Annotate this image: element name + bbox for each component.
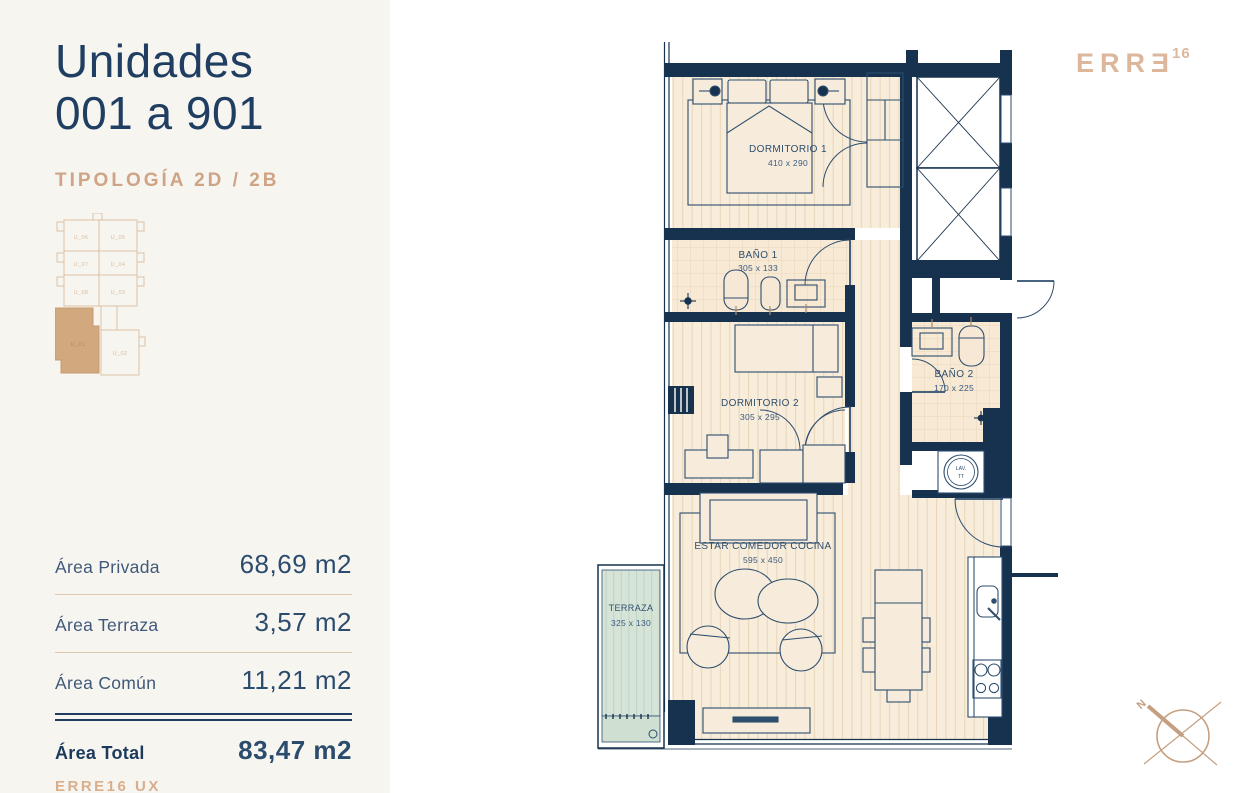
page-title-line1: Unidades <box>55 36 375 88</box>
keyplan-unit-label: U_06 <box>74 235 89 241</box>
wardrobe <box>760 450 803 483</box>
area-value: 68,69 m2 <box>240 549 352 580</box>
room-label: TERRAZA <box>609 603 654 613</box>
room-dims: 305 x 133 <box>738 263 778 273</box>
toilet <box>724 270 748 310</box>
washing-machine <box>938 451 984 493</box>
compass: N <box>1127 692 1227 772</box>
kitchen <box>968 557 1002 717</box>
area-row-comun: Área Común 11,21 m2 <box>55 653 352 710</box>
lamp-icon <box>710 86 720 96</box>
area-row-total: Área Total 83,47 m2 <box>55 723 352 780</box>
room-dims: 410 x 290 <box>768 158 808 168</box>
keyplan-unit-label: U_03 <box>111 290 126 296</box>
entry-door-frame <box>1001 498 1011 546</box>
bidet <box>761 277 780 310</box>
area-table: Área Privada 68,69 m2 Área Terraza 3,57 … <box>55 537 352 780</box>
radiator-unit <box>668 386 694 414</box>
room-label: ESTAR COMEDOR COCINA <box>694 541 831 552</box>
core-window <box>1001 95 1011 143</box>
typology-subtitle: TIPOLOGÍA 2D / 2B <box>55 170 280 192</box>
room-label: DORMITORIO 2 <box>721 398 799 409</box>
armchair <box>687 626 730 668</box>
room-dims: 595 x 450 <box>743 555 783 565</box>
page-title-line2: 001 a 901 <box>55 88 375 140</box>
armchair <box>780 629 822 671</box>
area-value: 11,21 m2 <box>242 665 352 696</box>
keyplan-highlighted-unit <box>55 308 99 373</box>
room-dims: 305 x 295 <box>740 412 780 422</box>
room-label: BAÑO 1 <box>738 248 777 261</box>
area-label: Área Terraza <box>55 615 158 636</box>
lamp-icon <box>818 86 828 96</box>
pillow <box>728 80 766 103</box>
area-row-privada: Área Privada 68,69 m2 <box>55 537 352 594</box>
compass-north-label: N <box>1135 698 1149 712</box>
keyplan-unit-label: U_02 <box>113 351 128 357</box>
keyplan-unit-label: U_04 <box>111 262 126 268</box>
tv <box>733 717 778 722</box>
faucet-icon <box>992 599 996 603</box>
nightstand <box>817 377 842 397</box>
elevator-core <box>917 77 1000 261</box>
dining-table <box>875 570 922 690</box>
coffee-table <box>758 579 818 623</box>
area-row-terraza: Área Terraza 3,57 m2 <box>55 595 352 652</box>
keyplan-unit-label: U_08 <box>74 290 89 296</box>
area-value: 3,57 m2 <box>255 607 352 638</box>
area-label: Área Común <box>55 673 156 694</box>
keyplan-unit-label: U_05 <box>111 235 126 241</box>
core-window <box>1001 188 1011 236</box>
page-title: Unidades 001 a 901 <box>55 36 375 139</box>
keyplan-unit-label: U_07 <box>74 262 89 268</box>
room-label: BAÑO 2 <box>934 367 973 380</box>
desk-chair <box>707 435 728 458</box>
keyplan-unit-label-highlighted: U_01 <box>71 342 86 348</box>
laundry-label: LAV. <box>956 466 966 472</box>
keyplan-diagram: U_06 U_05 U_07 U_04 U_08 U_03 U_01 U_02 <box>55 213 147 381</box>
area-total-label: Área Total <box>55 743 145 764</box>
toilet <box>959 326 984 366</box>
floor-hall <box>848 240 900 495</box>
total-divider <box>55 713 352 721</box>
laundry-label: TT <box>958 474 965 480</box>
floorplan-drawing: DORMITORIO 1 410 x 290 BAÑO 1 305 x 133 … <box>560 0 1245 793</box>
room-label: DORMITORIO 1 <box>749 144 827 155</box>
footer-brand-text: ERRE16 UX <box>55 779 161 793</box>
floorplan-sheet: Unidades 001 a 901 TIPOLOGÍA 2D / 2B U_0… <box>0 0 1245 793</box>
room-dims: 325 x 130 <box>611 618 651 628</box>
area-label: Área Privada <box>55 557 160 578</box>
wardrobe <box>803 445 845 483</box>
bed-single <box>735 325 838 372</box>
terrace <box>598 565 664 748</box>
room-dims: 170 x 225 <box>934 383 974 393</box>
area-total-value: 83,47 m2 <box>238 735 352 766</box>
floor-elevator-lobby <box>912 278 1000 313</box>
pillow <box>770 80 808 103</box>
